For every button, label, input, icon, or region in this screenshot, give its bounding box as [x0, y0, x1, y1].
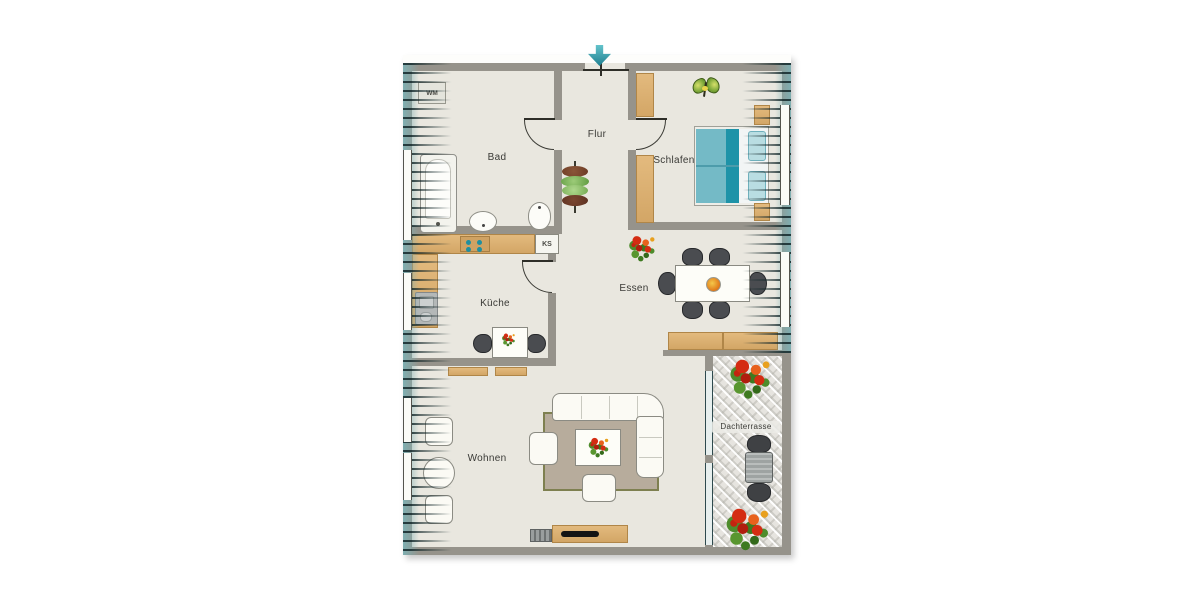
tv — [561, 531, 599, 537]
flower-blooms — [504, 334, 508, 338]
butterfly-wing-right — [704, 76, 721, 94]
wall-bottom — [403, 547, 791, 555]
fridge-label: KS — [536, 241, 558, 248]
terrace-glass-door-2 — [705, 463, 713, 545]
window-kueche — [403, 273, 412, 330]
dining-chair-bottom-2 — [709, 301, 730, 319]
window-essen — [780, 252, 790, 327]
dining-chair-top-1 — [682, 248, 703, 266]
bathroom-sink — [469, 211, 497, 232]
butterfly-dot — [702, 86, 708, 91]
plant-icon — [560, 161, 590, 213]
window-wohnen-1 — [403, 398, 412, 442]
sofa-seam — [639, 457, 662, 458]
terrace-chair-top — [747, 435, 771, 453]
sofa-armchair — [529, 432, 558, 465]
lowboard-segment-2 — [495, 367, 527, 376]
terrace-table — [745, 452, 773, 483]
sofa-seam — [609, 396, 610, 419]
entrance-door-line — [583, 69, 629, 71]
wall-flur-schlafen-lower — [628, 150, 636, 230]
stove-burners — [466, 240, 471, 245]
room-label-dachterrasse: Dachterrasse — [712, 421, 780, 433]
dining-chair-left — [658, 272, 676, 295]
butterfly-icon — [691, 76, 721, 104]
terrace-chair-bottom — [747, 483, 771, 502]
toilet — [528, 202, 551, 230]
room-label-bad: Bad — [477, 152, 517, 164]
terrace-glass-door-1 — [705, 371, 713, 455]
sofa-right-section — [636, 416, 664, 478]
terrace-flower-bottom — [723, 507, 766, 547]
fridge: KS — [535, 234, 559, 254]
flower-blooms — [732, 509, 746, 523]
hifi-unit — [530, 529, 552, 542]
room-label-essen: Essen — [609, 283, 659, 295]
kitchen-chair-left — [473, 334, 492, 353]
window-schlafen — [780, 105, 790, 205]
plant-leaves-4 — [562, 195, 588, 206]
toilet-flush — [538, 206, 541, 209]
stool — [582, 474, 616, 502]
kitchen-chair-right — [527, 334, 546, 353]
room-label-kueche: Küche — [470, 298, 520, 310]
sideboard-segment-1 — [668, 332, 723, 350]
room-label-wohnen: Wohnen — [462, 453, 512, 465]
stove — [460, 236, 490, 252]
fruit-bowl — [706, 277, 721, 292]
wall-bad-flur-upper — [554, 71, 562, 120]
room-label-flur: Flur — [577, 129, 617, 141]
essen-flower — [627, 235, 653, 259]
dining-chair-top-2 — [709, 248, 730, 266]
sink-drain — [482, 224, 485, 227]
kitchen-table-flower — [501, 333, 514, 345]
window-wohnen-2 — [403, 453, 412, 500]
dining-chair-bottom-1 — [682, 301, 703, 319]
room-label-schlafen: Schlafen — [644, 155, 704, 167]
coffee-table-flower — [587, 437, 607, 456]
sofa-seam — [581, 396, 582, 419]
wall-flur-schlafen-upper — [628, 71, 636, 120]
flower-blooms — [633, 236, 642, 245]
wall-kueche-right-lower — [548, 293, 556, 366]
flower-blooms — [736, 360, 750, 374]
wardrobe-upper — [636, 73, 654, 117]
flower-blooms — [591, 438, 598, 445]
terrace-flower-top — [727, 358, 768, 395]
floorplan: WM KS — [403, 55, 791, 555]
sofa-seam — [639, 437, 662, 438]
window-bad — [403, 150, 412, 240]
